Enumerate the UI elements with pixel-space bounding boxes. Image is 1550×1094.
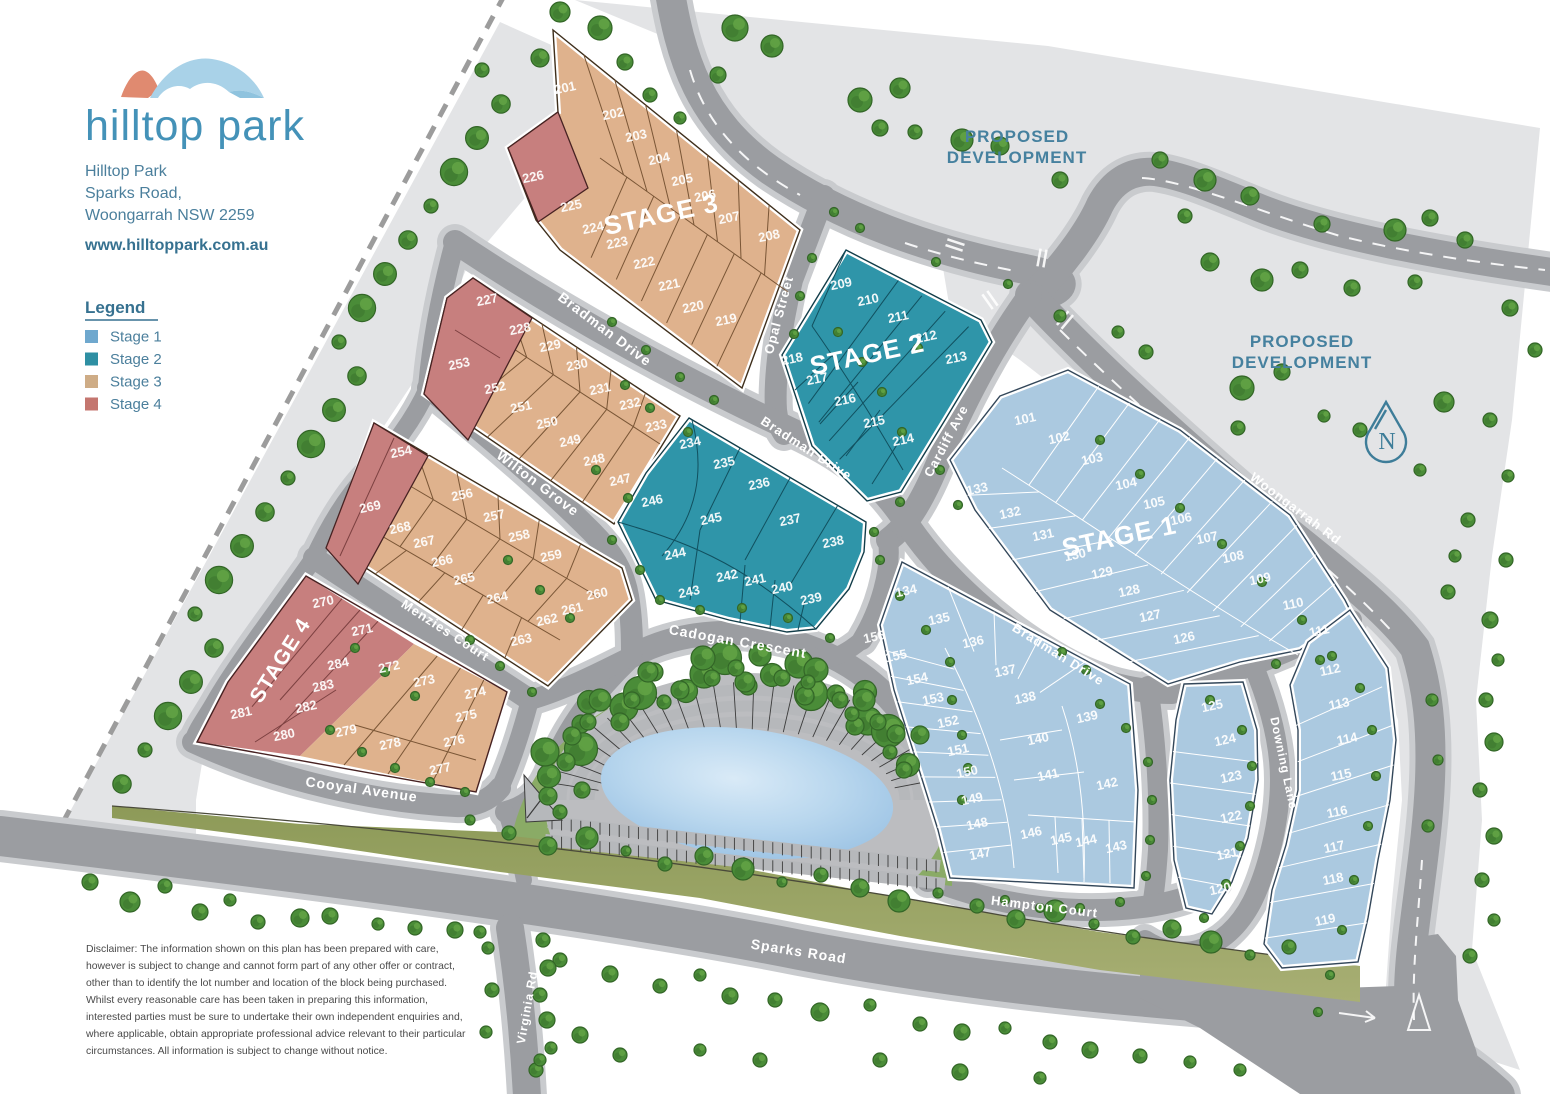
svg-text:however is subject to change a: however is subject to change and cannot … <box>86 961 455 972</box>
svg-text:Stage 1: Stage 1 <box>110 329 162 346</box>
svg-text:where applicable, obtain appro: where applicable, obtain appropriate pro… <box>85 1029 466 1040</box>
svg-text:PROPOSED: PROPOSED <box>1250 332 1354 351</box>
svg-text:N: N <box>1378 429 1395 455</box>
svg-text:Stage 3: Stage 3 <box>110 374 162 391</box>
svg-text:DEVELOPMENT: DEVELOPMENT <box>1232 353 1372 372</box>
svg-text:Disclaimer: The information sh: Disclaimer: The information shown on thi… <box>86 944 439 955</box>
svg-text:Sparks Road,: Sparks Road, <box>85 185 182 202</box>
svg-text:circumstances. All information: circumstances. All information is subjec… <box>86 1046 387 1057</box>
svg-text:DEVELOPMENT: DEVELOPMENT <box>947 148 1087 167</box>
svg-text:Whilst every reasonable care h: Whilst every reasonable care has been ta… <box>86 995 428 1006</box>
svg-text:interested parties must be sur: interested parties must be sure to under… <box>86 1012 463 1023</box>
svg-text:PROPOSED: PROPOSED <box>965 127 1069 146</box>
svg-text:Stage 4: Stage 4 <box>110 396 162 413</box>
svg-text:Woongarrah NSW 2259: Woongarrah NSW 2259 <box>85 207 255 224</box>
svg-text:hilltop park: hilltop park <box>85 102 305 150</box>
svg-text:Stage 2: Stage 2 <box>110 351 162 368</box>
svg-text:Hilltop Park: Hilltop Park <box>85 163 168 180</box>
svg-text:Legend: Legend <box>85 298 145 317</box>
svg-text:other than to identify the lot: other than to identify the lot number an… <box>86 978 447 989</box>
svg-text:www.hilltoppark.com.au: www.hilltoppark.com.au <box>84 237 268 254</box>
